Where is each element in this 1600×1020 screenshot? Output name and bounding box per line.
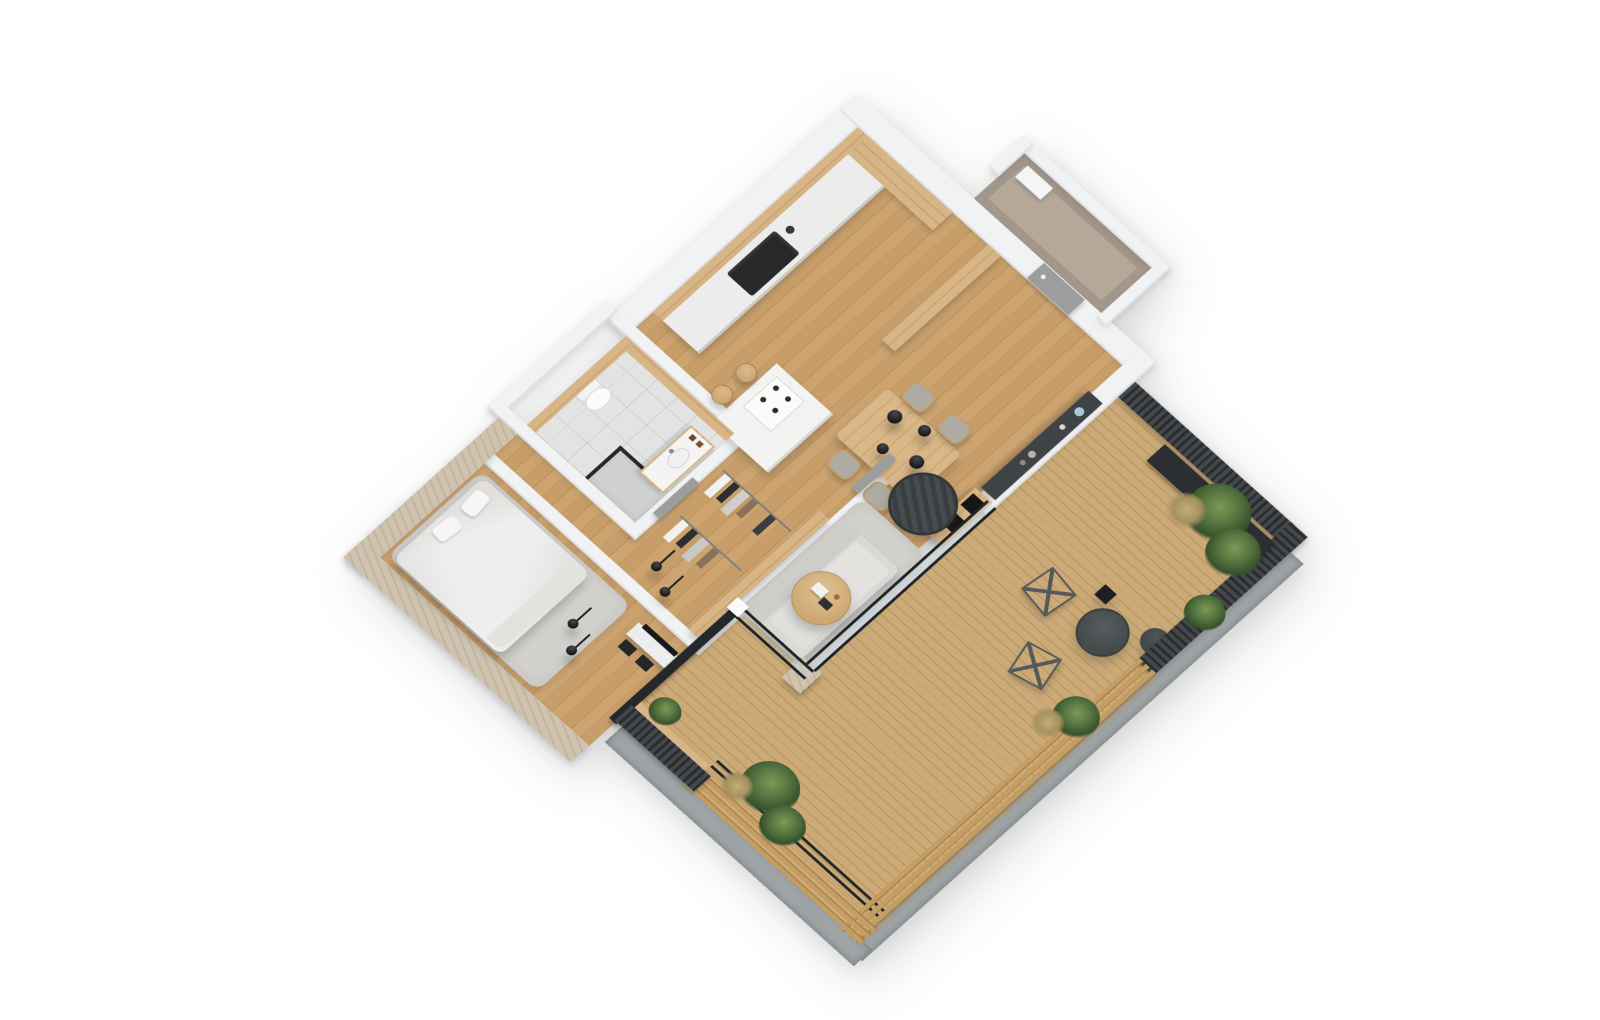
decor-cup — [833, 593, 841, 601]
render-canvas — [0, 0, 1600, 1020]
pillow — [431, 515, 464, 544]
cooktop — [743, 376, 805, 432]
apartment-floor-plan — [363, 112, 1353, 1003]
book-stack — [811, 582, 829, 599]
door-handle — [1040, 274, 1047, 280]
pillow — [460, 488, 492, 518]
book-stack — [818, 597, 834, 611]
